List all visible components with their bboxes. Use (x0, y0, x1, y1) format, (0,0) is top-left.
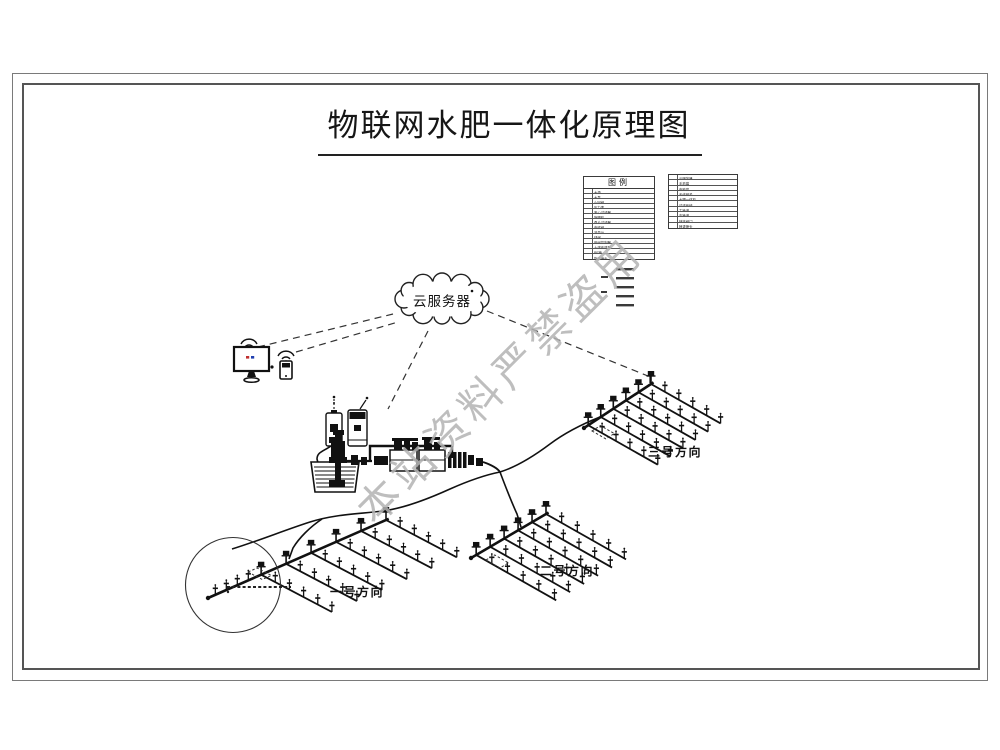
cloud-label: 云服务器 (406, 290, 478, 310)
suction-hose (317, 446, 331, 463)
manifold (448, 452, 483, 468)
link-cloud-station (388, 331, 428, 409)
tiny-notes (601, 268, 634, 306)
outlet-pipe (483, 462, 500, 472)
field-label-2: 二号方向 (540, 562, 594, 579)
page-canvas: 物联网水肥一体化原理图 图例 1水源2水泵3止回阀4压力表5离心过滤器6施肥机7… (0, 0, 1000, 750)
filter-station (390, 437, 445, 471)
fertigation-station (311, 396, 500, 492)
link-cloud-field (487, 311, 648, 376)
field-grid-2 (469, 501, 627, 600)
link-phone-cloud (296, 322, 398, 352)
fertilizer-tank-b (348, 397, 368, 446)
branch-field1 (289, 519, 322, 559)
monitor-icon (234, 347, 274, 382)
network-links (258, 311, 648, 409)
field-label-1: 一号方向 (330, 583, 384, 600)
smartphone-icon (280, 361, 292, 379)
field-label-3: 三号方向 (648, 443, 702, 460)
diagram-svg (0, 0, 1000, 750)
tag-marker-3 (592, 426, 614, 439)
link-monitor-cloud (258, 314, 393, 347)
